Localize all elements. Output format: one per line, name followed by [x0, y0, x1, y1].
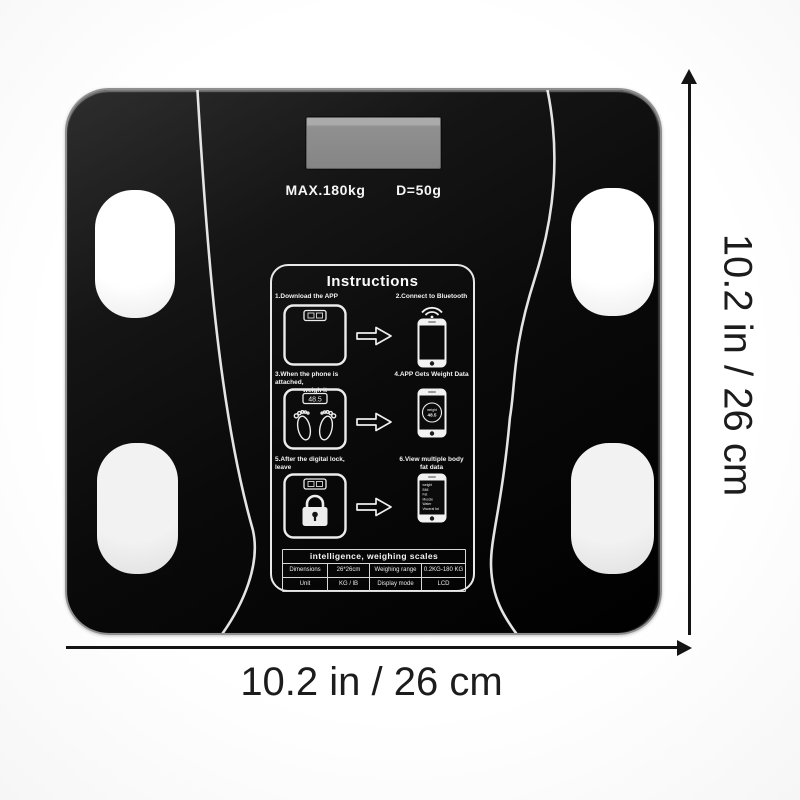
- spec-cell: Unit: [283, 578, 327, 591]
- spec-table-row: Unit KG / lB Display mode LCD: [283, 577, 465, 591]
- height-dimension-label: 10.2 in / 26 cm: [715, 234, 760, 496]
- lcd-display: [306, 117, 441, 169]
- spec-table-header: intelligence, weighing scales: [283, 550, 465, 563]
- max-capacity-label: MAX.180kg D=50g: [67, 182, 660, 198]
- lock-scale-icon: [283, 473, 347, 539]
- foot-pad-top-left: [95, 190, 175, 318]
- svg-text:48.5: 48.5: [427, 413, 436, 418]
- spec-cell: Display mode: [369, 578, 421, 591]
- width-dimension-label: 10.2 in / 26 cm: [65, 660, 678, 705]
- app-scale-icon: [283, 304, 347, 366]
- svg-text:48.5: 48.5: [308, 397, 322, 404]
- arrow-right-icon: [355, 496, 393, 518]
- feet-scale-icon: 48.5: [283, 388, 347, 450]
- weight-phone-icon: weight 48.5: [417, 388, 447, 438]
- step-3-label: 3.When the phone is attached, weigh it: [275, 371, 355, 388]
- spec-table-row: Dimensions 26*26cm Weighing range 0.2KG-…: [283, 563, 465, 577]
- product-photo: MAX.180kg D=50g Instructions 1.Download …: [0, 0, 800, 800]
- spec-cell: KG / lB: [327, 578, 369, 591]
- width-arrow-line: [66, 646, 679, 649]
- arrow-right-icon: [355, 325, 393, 347]
- svg-text:Muscle: Muscle: [422, 497, 433, 501]
- spec-cell: Dimensions: [283, 564, 327, 577]
- foot-pad-top-right: [571, 188, 654, 316]
- svg-text:weight: weight: [427, 408, 437, 412]
- step-row-2: 3.When the phone is attached, weigh it 4…: [275, 371, 470, 450]
- svg-text:Fat: Fat: [422, 493, 427, 497]
- step-row-1: 1.Download the APP 2.Connect to Bluetoot…: [275, 293, 470, 368]
- width-arrow-head-icon: [677, 640, 692, 656]
- spec-cell: LCD: [421, 578, 465, 591]
- height-arrow-line: [688, 82, 691, 635]
- scale-body: MAX.180kg D=50g Instructions 1.Download …: [65, 88, 662, 635]
- arrow-right-icon: [355, 411, 393, 433]
- svg-text:BMI: BMI: [422, 488, 428, 492]
- svg-text:weight: weight: [422, 483, 432, 487]
- step-4-label: 4.APP Gets Weight Data: [393, 371, 470, 388]
- svg-text:Water: Water: [422, 502, 432, 506]
- spec-cell: 26*26cm: [327, 564, 369, 577]
- step-row-3: 5.After the digital lock, leave: [275, 456, 470, 539]
- spec-cell: Weighing range: [369, 564, 421, 577]
- foot-pad-bottom-left: [97, 443, 178, 574]
- step-1-label: 1.Download the APP: [275, 293, 355, 304]
- panel-title: Instructions: [272, 273, 473, 290]
- phone-icon: [417, 318, 447, 368]
- foot-pad-bottom-right: [571, 443, 654, 574]
- height-arrow-head-icon: [681, 69, 697, 84]
- step-5-label: 5.After the digital lock, leave: [275, 456, 355, 473]
- spec-cell: 0.2KG-180 KG: [421, 564, 465, 577]
- division-text: D=50g: [396, 182, 441, 198]
- step-6-label: 6.View multiple body fat data: [393, 456, 470, 473]
- data-phone-icon: weight BMI Fat Muscle Water Visceral fat: [417, 473, 447, 523]
- bluetooth-wifi-icon: [418, 304, 446, 318]
- max-weight-text: MAX.180kg: [285, 182, 365, 198]
- spec-table: intelligence, weighing scales Dimensions…: [282, 549, 466, 592]
- svg-text:Visceral fat: Visceral fat: [422, 507, 438, 511]
- instructions-panel: Instructions 1.Download the APP: [270, 264, 475, 592]
- step-2-label: 2.Connect to Bluetooth: [393, 293, 470, 304]
